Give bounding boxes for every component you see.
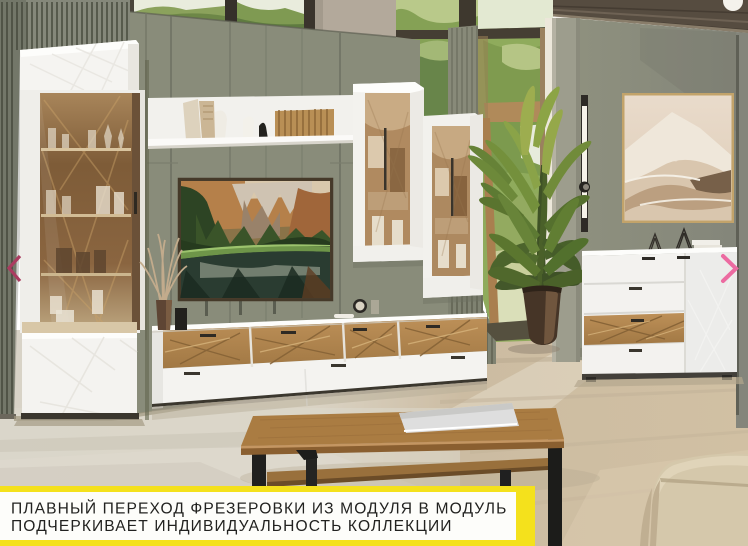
- svg-text:ПЛАВНЫЙ ПЕРЕХОД ФРЕЗЕРОВКИ ИЗ: ПЛАВНЫЙ ПЕРЕХОД ФРЕЗЕРОВКИ ИЗ МОДУЛЯ В М…: [11, 499, 507, 518]
- svg-text:ПОДЧЕРКИВАЕТ ИНДИВИДУАЛЬНОСТЬ: ПОДЧЕРКИВАЕТ ИНДИВИДУАЛЬНОСТЬ КОЛЛЕКЦИИ: [11, 518, 453, 535]
